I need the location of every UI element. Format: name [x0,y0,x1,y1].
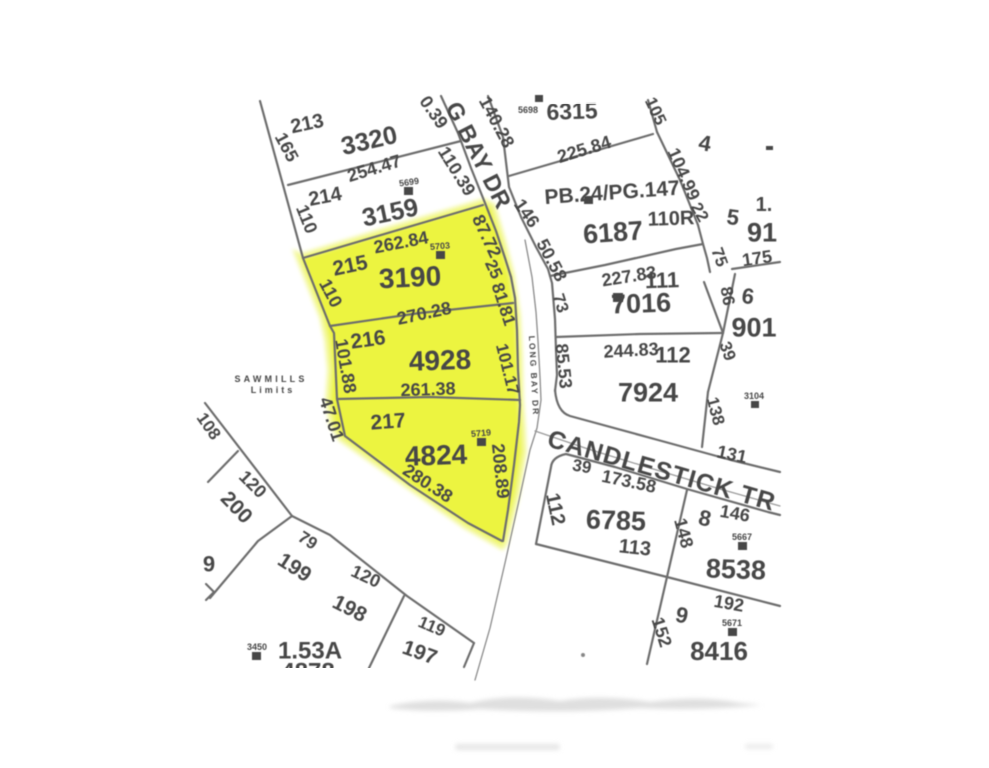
svg-text:216: 216 [349,326,387,354]
svg-text:8538: 8538 [705,553,766,585]
svg-text:91: 91 [747,217,777,247]
svg-text:4: 4 [697,130,714,157]
svg-text:3104: 3104 [744,391,764,401]
svg-text:225.84: 225.84 [555,132,614,167]
svg-text:6785: 6785 [585,504,646,536]
svg-text:39: 39 [715,339,739,363]
svg-text:113: 113 [618,535,652,560]
svg-text:PB.24/PG.147: PB.24/PG.147 [544,177,681,209]
svg-text:119: 119 [415,612,448,640]
svg-text:5667: 5667 [732,532,752,542]
svg-text:112: 112 [541,491,569,527]
svg-text:198: 198 [329,591,371,628]
svg-text:146: 146 [718,501,751,526]
svg-text:39: 39 [571,455,593,477]
svg-text:112: 112 [655,343,691,368]
svg-text:Limits: Limits [251,385,296,395]
svg-text:50.58: 50.58 [532,236,571,285]
svg-text:6: 6 [740,283,756,309]
svg-text:5703: 5703 [430,240,451,252]
svg-text:110R: 110R [647,207,695,231]
svg-text:9: 9 [203,552,215,577]
svg-text:79: 79 [295,527,321,553]
svg-text:3190: 3190 [378,260,442,294]
svg-text:7016: 7016 [610,287,671,319]
svg-text:5719: 5719 [471,427,492,439]
svg-text:5698: 5698 [518,105,538,115]
svg-text:217: 217 [370,409,407,434]
svg-text:108: 108 [193,409,225,443]
svg-text:5: 5 [725,204,741,230]
svg-text:75: 75 [707,245,731,269]
svg-text:8416: 8416 [690,636,748,666]
svg-text:4928: 4928 [408,344,471,377]
svg-text:138: 138 [703,395,729,427]
svg-text:105: 105 [641,94,670,128]
svg-text:1.: 1. [756,194,773,216]
svg-text:197: 197 [399,636,440,670]
svg-text:SAWMILLS: SAWMILLS [234,374,307,384]
svg-text:8: 8 [696,505,713,532]
svg-text:120: 120 [348,561,384,592]
svg-text:192: 192 [712,591,745,616]
svg-text:901: 901 [731,312,776,342]
svg-text:5699: 5699 [398,176,419,189]
svg-text:86: 86 [717,285,739,307]
svg-text:3450: 3450 [247,642,267,652]
svg-text:5671: 5671 [722,618,742,628]
svg-text:175: 175 [741,246,774,270]
svg-text:244.83: 244.83 [603,339,659,362]
svg-text:7924: 7924 [618,377,678,407]
svg-text:213: 213 [289,110,326,138]
svg-text:9: 9 [673,602,690,629]
svg-text:199: 199 [274,549,316,587]
svg-text:131: 131 [715,441,749,467]
svg-text:6187: 6187 [582,215,644,249]
svg-text:261.38: 261.38 [400,378,456,400]
